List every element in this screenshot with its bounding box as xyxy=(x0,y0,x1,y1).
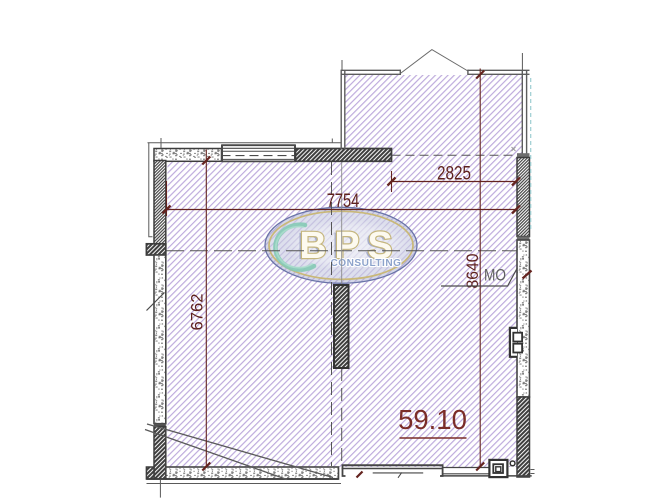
svg-text:2825: 2825 xyxy=(437,163,471,185)
svg-text:CONSULTING: CONSULTING xyxy=(331,258,402,269)
svg-text:МО: МО xyxy=(484,267,506,285)
svg-text:7754: 7754 xyxy=(327,190,360,212)
svg-text:59.10: 59.10 xyxy=(398,404,467,435)
svg-text:6762: 6762 xyxy=(188,294,206,331)
svg-text:8640: 8640 xyxy=(464,254,482,289)
